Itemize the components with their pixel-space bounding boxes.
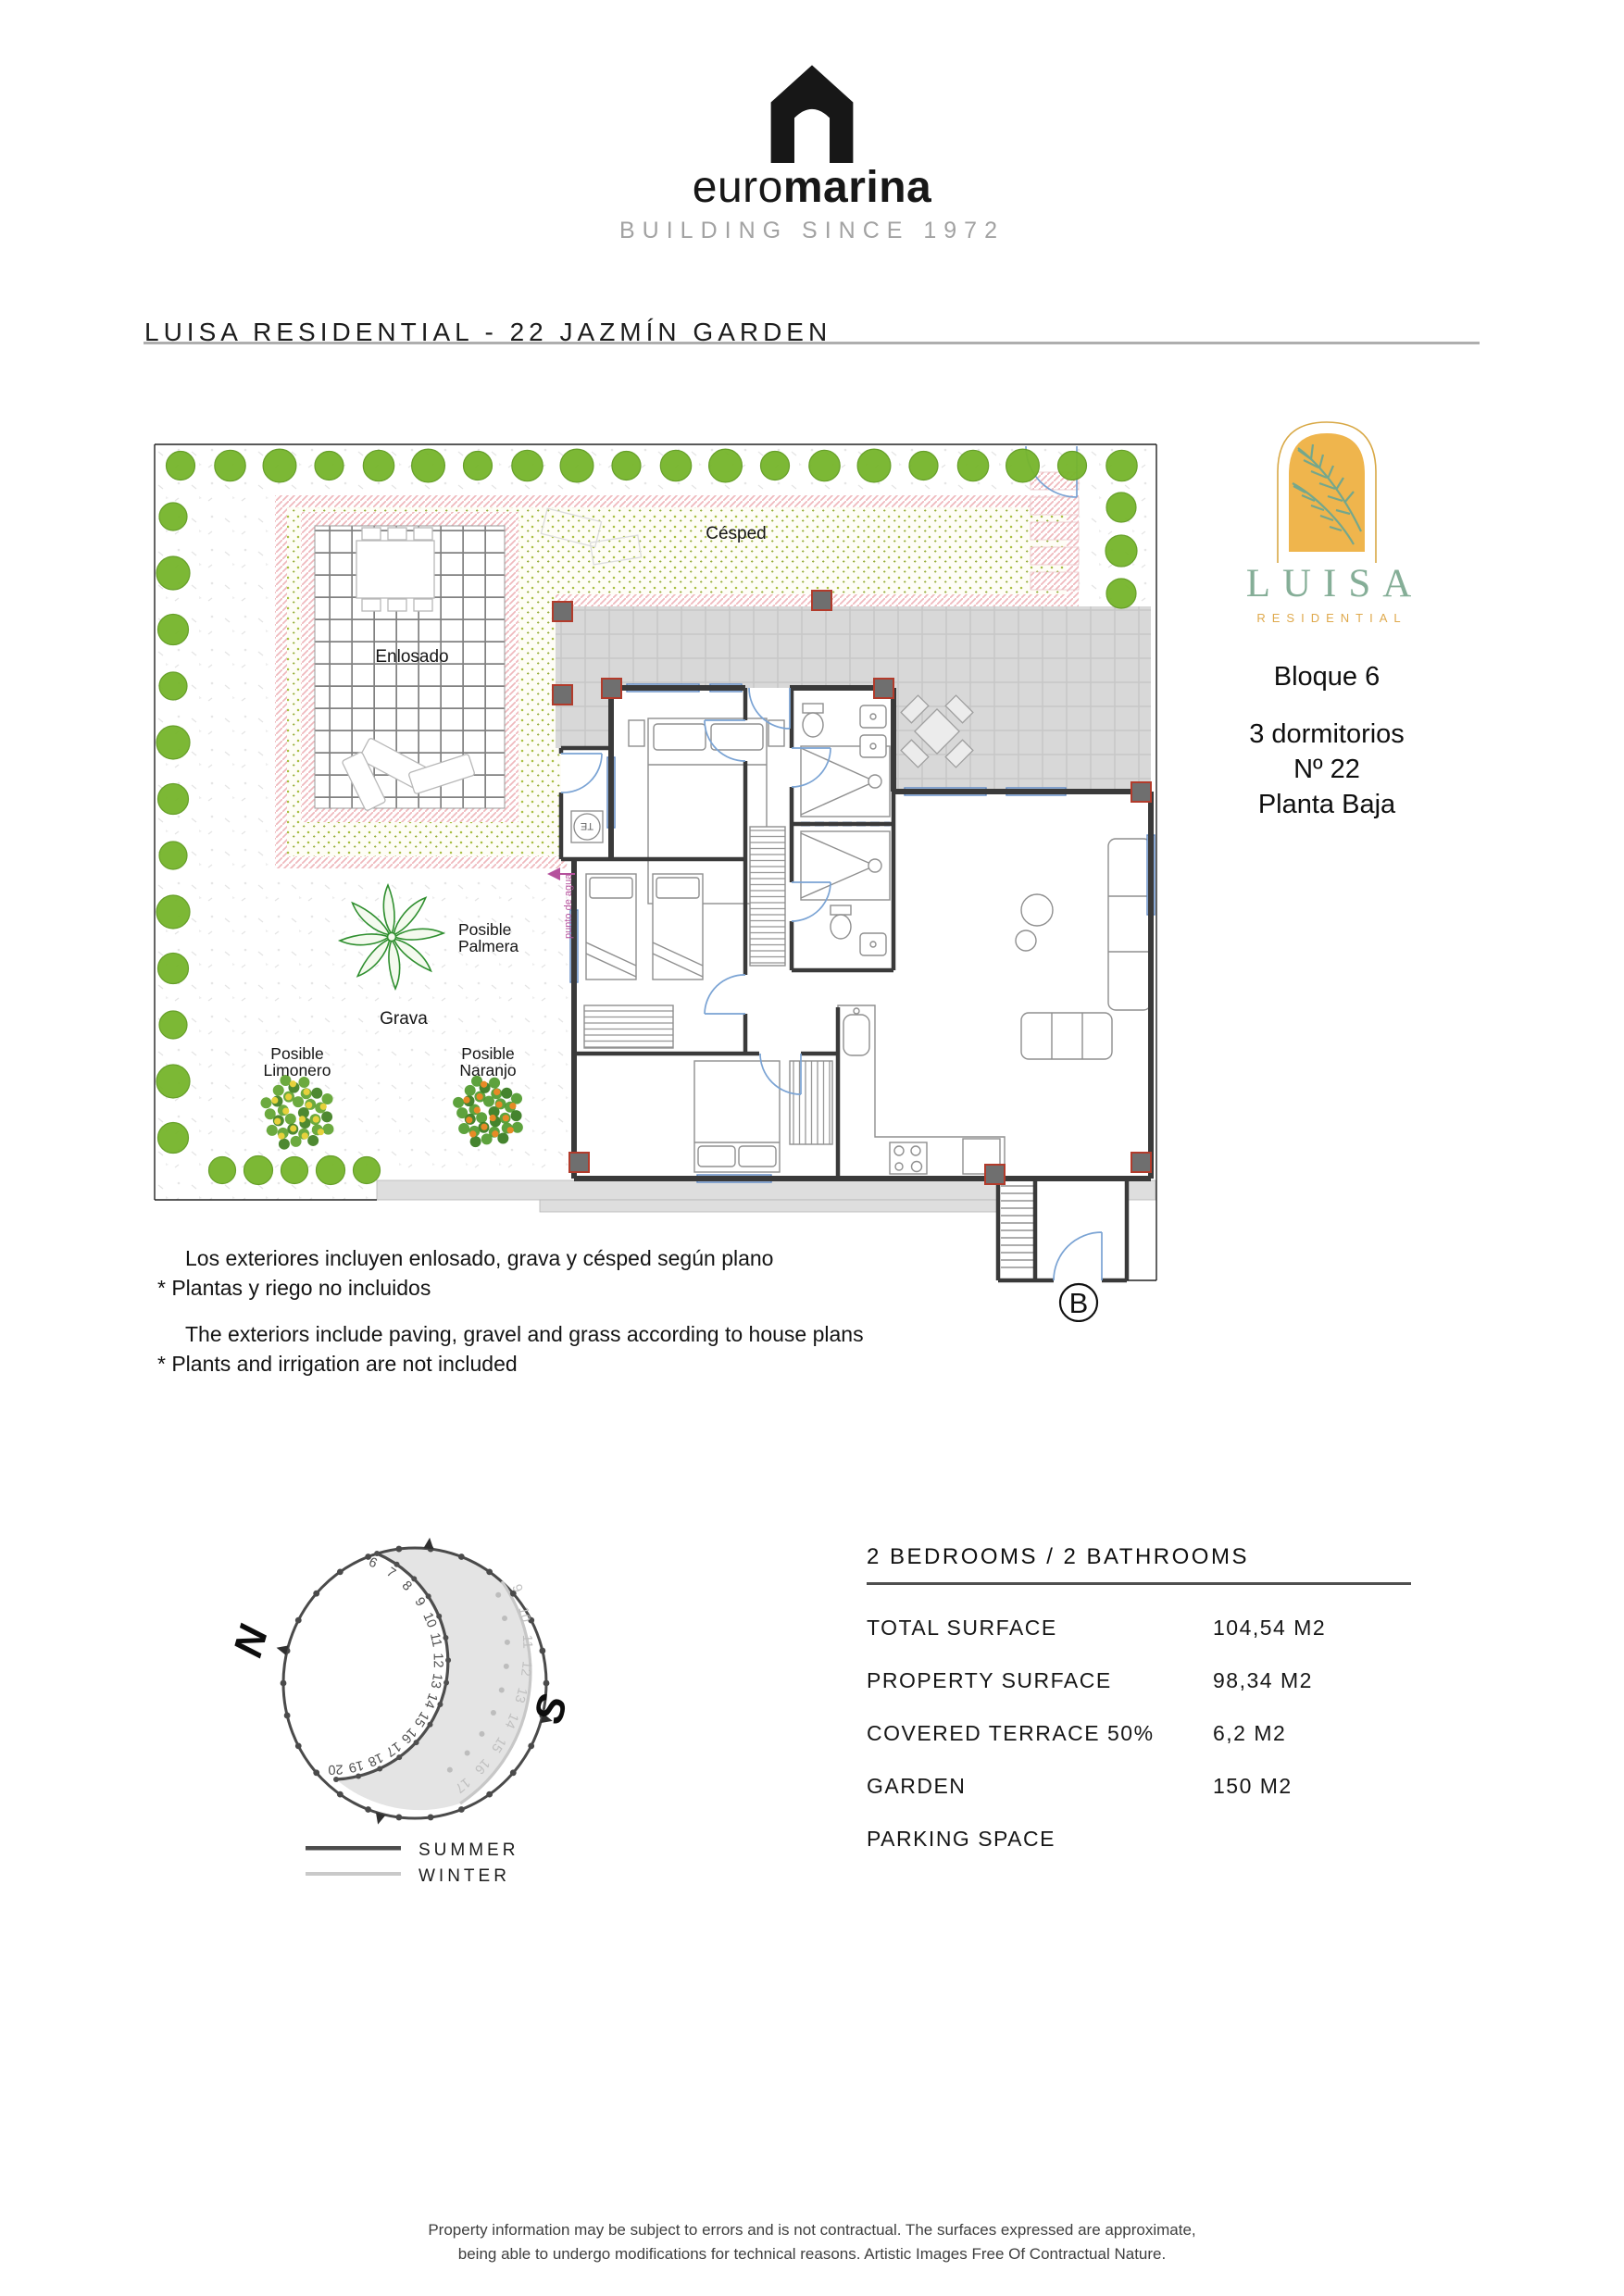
label-grava: Grava (380, 1009, 428, 1029)
south-label: S (525, 1690, 576, 1728)
details-row-label: PROPERTY SURFACE (867, 1668, 1213, 1693)
garden-tree (857, 449, 891, 482)
unit-info: Bloque 6 3 dormitorios Nº 22 Planta Baja (1204, 659, 1450, 822)
garden-tree (156, 1065, 190, 1098)
luisa-logo-icon (1270, 415, 1383, 568)
garden-tree (215, 450, 245, 480)
sun-hour-label: 8 (399, 1578, 415, 1594)
garden-tree (159, 842, 187, 869)
details-row: COVERED TERRACE 50%6,2 M2 (867, 1707, 1413, 1760)
garden-tree (167, 452, 195, 480)
unit-floor: Planta Baja (1204, 787, 1450, 822)
sun-hour-label: 11 (519, 1634, 535, 1649)
garden-tree (709, 449, 743, 482)
details-row-label: PARKING SPACE (867, 1827, 1213, 1852)
garden-tree (761, 452, 790, 480)
project-name: LUISA (1208, 561, 1449, 606)
sidewalk-lower (540, 1200, 998, 1212)
brand-wordmark-light: euro (693, 163, 783, 212)
garden-tree (158, 954, 189, 984)
garden-tree (156, 556, 190, 590)
details-row: TOTAL SURFACE104,54 M2 (867, 1602, 1413, 1654)
details-row-value: 104,54 M2 (1213, 1616, 1326, 1641)
garden-tree (281, 1157, 308, 1184)
sun-hour-label: 9 (411, 1595, 428, 1610)
sun-hour-label: 14 (421, 1691, 441, 1711)
sun-hour-label: 12 (518, 1660, 534, 1677)
label-enlosado: Enlosado (375, 647, 448, 667)
entrance-letter: B (1069, 1287, 1089, 1319)
garden-tree (1106, 579, 1136, 608)
garden-tree (809, 450, 840, 480)
label-naranjo-2: Naranjo (459, 1061, 516, 1079)
note-es-2: * Plantas y riego no incluidos (157, 1276, 431, 1301)
garden-tree (315, 452, 344, 480)
title-divider (144, 342, 1480, 344)
brochure-page: euromarina BUILDING SINCE 1972 LUISA RES… (0, 0, 1624, 2296)
water-heater-label: TE (581, 820, 593, 831)
garden-tree (560, 449, 593, 482)
label-limonero-1: Posible (270, 1044, 323, 1063)
garden-tree (464, 452, 493, 480)
details-row-value: 6,2 M2 (1213, 1721, 1286, 1746)
summer-legend-label: SUMMER (418, 1841, 518, 1860)
garden-tree (512, 450, 543, 480)
disclaimer-line-2: being able to undergo modifications for … (0, 2242, 1624, 2266)
sun-path-diagram: 6789101112131415161718192091011121314151… (213, 1518, 630, 1981)
winter-legend-label: WINTER (418, 1866, 510, 1886)
sun-hour-label: 12 (431, 1653, 445, 1667)
garden-tree (1058, 452, 1087, 480)
garden-tree (263, 449, 296, 482)
garden-tree (317, 1156, 345, 1185)
sun-hour-label: 19 (347, 1757, 365, 1775)
garden-tree (1006, 449, 1040, 482)
disclaimer-line-1: Property information may be subject to e… (0, 2218, 1624, 2242)
details-header: 2 BEDROOMS / 2 BATHROOMS (867, 1544, 1413, 1570)
unit-number: Nº 22 (1204, 752, 1450, 787)
garden-tree (1106, 450, 1137, 480)
details-rows: TOTAL SURFACE104,54 M2PROPERTY SURFACE98… (867, 1602, 1413, 1865)
details-row-label: GARDEN (867, 1774, 1213, 1799)
garden-tree (660, 450, 691, 480)
garden-tree (909, 452, 938, 480)
garden-tree (156, 895, 190, 929)
garden-tree (156, 726, 190, 759)
details-table: 2 BEDROOMS / 2 BATHROOMS TOTAL SURFACE10… (867, 1544, 1413, 1865)
sun-hour-label: 13 (428, 1672, 445, 1690)
brand-tagline: BUILDING SINCE 1972 (0, 218, 1624, 244)
details-row: PARKING SPACE (867, 1813, 1413, 1865)
winter-legend-line (306, 1872, 401, 1876)
disclaimer: Property information may be subject to e… (0, 2218, 1624, 2266)
label-limonero-2: Limonero (264, 1061, 331, 1079)
note-es-1: Los exteriores incluyen enlosado, grava … (185, 1246, 773, 1271)
label-naranjo-1: Posible (461, 1044, 514, 1063)
garden-tree (158, 615, 189, 645)
water-heater: TE (571, 811, 603, 842)
stepping-stones (1031, 472, 1079, 590)
garden-tree (244, 1156, 273, 1185)
sun-hour-label: 20 (328, 1761, 344, 1777)
details-row-label: COVERED TERRACE 50% (867, 1721, 1213, 1746)
details-underline (867, 1582, 1411, 1585)
details-row-value: 150 M2 (1213, 1774, 1293, 1799)
garden-tree (209, 1157, 236, 1184)
brand-wordmark: euromarina (0, 165, 1624, 211)
note-en-1: The exteriors include paving, gravel and… (185, 1322, 864, 1347)
sun-hour-label: 11 (427, 1631, 444, 1648)
unit-bedrooms: 3 dormitorios (1204, 717, 1450, 752)
sun-hour-label: 7 (383, 1565, 398, 1581)
note-en-2: * Plants and irrigation are not included (157, 1352, 518, 1377)
sun-hour-label: 9 (508, 1582, 525, 1594)
garden-tree (957, 450, 988, 480)
euromarina-house-icon (763, 59, 861, 163)
details-row: PROPERTY SURFACE98,34 M2 (867, 1654, 1413, 1707)
garden-tree (159, 672, 187, 700)
garden-tree (363, 450, 394, 480)
garden-tree (158, 784, 189, 815)
garden-tree (159, 1011, 187, 1039)
garden-tree (354, 1157, 381, 1184)
garden-tree (412, 449, 445, 482)
floor-plan: TE punto de agua B (153, 443, 1157, 1322)
summer-legend-line (306, 1846, 401, 1851)
garden-tree (159, 503, 187, 530)
brand-logo: euromarina BUILDING SINCE 1972 (0, 59, 1624, 244)
garden-tree (1106, 535, 1137, 567)
label-cesped: Césped (706, 524, 767, 543)
details-row: GARDEN150 M2 (867, 1760, 1413, 1813)
label-palmera-2: Palmera (458, 937, 518, 955)
garden-tree (1106, 493, 1136, 522)
unit-block: Bloque 6 (1204, 659, 1450, 694)
garden-tree (612, 452, 641, 480)
sun-hour-label: 10 (515, 1606, 532, 1624)
entrance-marker: B (1060, 1284, 1097, 1321)
water-point-label: punto de agua (563, 873, 574, 939)
project-subtitle: RESIDENTIAL (1208, 611, 1449, 625)
brand-wordmark-bold: marina (783, 163, 931, 212)
details-row-value: 98,34 M2 (1213, 1668, 1313, 1693)
north-label: N (225, 1620, 277, 1662)
label-palmera-1: Posible (458, 920, 511, 939)
garden-tree (158, 1123, 189, 1154)
details-row-label: TOTAL SURFACE (867, 1616, 1213, 1641)
